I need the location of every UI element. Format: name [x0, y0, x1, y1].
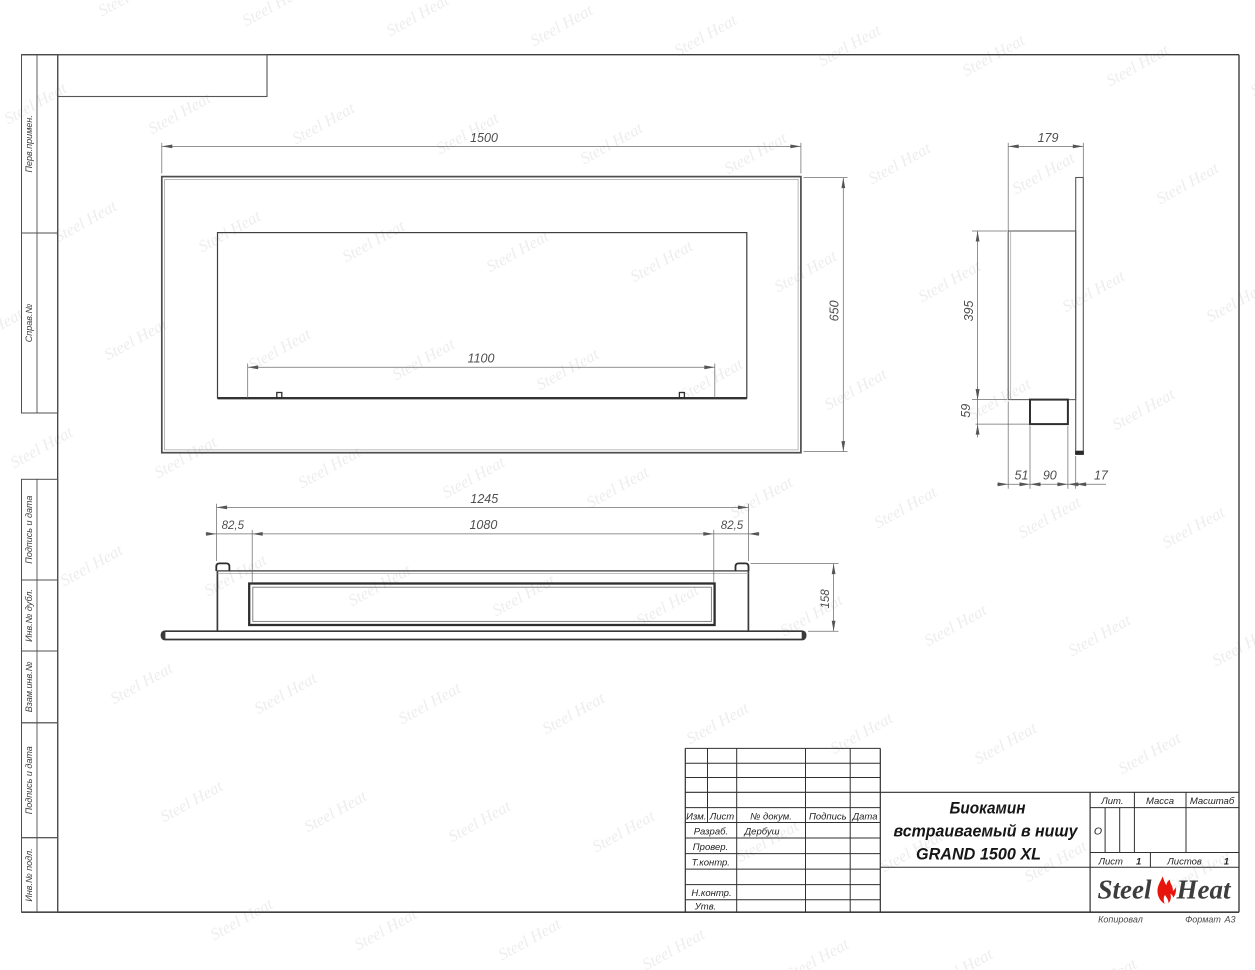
svg-text:Steel Heat: Steel Heat [677, 354, 746, 404]
svg-text:А3: А3 [1223, 915, 1235, 925]
svg-text:Steel Heat: Steel Heat [157, 776, 226, 826]
svg-text:Steel Heat: Steel Heat [1153, 158, 1222, 208]
svg-text:Steel Heat: Steel Heat [57, 540, 126, 590]
svg-text:Steel Heat: Steel Heat [683, 698, 752, 748]
svg-text:Steel Heat: Steel Heat [0, 304, 26, 354]
svg-text:Steel Heat: Steel Heat [627, 236, 696, 286]
svg-text:Steel Heat: Steel Heat [195, 206, 264, 256]
svg-text:1080: 1080 [469, 518, 497, 532]
svg-text:Steel Heat: Steel Heat [583, 462, 652, 512]
svg-text:Steel Heat: Steel Heat [345, 560, 414, 610]
svg-text:Масса: Масса [1146, 796, 1174, 807]
svg-text:17: 17 [1094, 469, 1109, 483]
svg-text:Steel Heat: Steel Heat [539, 688, 608, 738]
svg-text:Steel Heat: Steel Heat [589, 806, 658, 856]
svg-text:1100: 1100 [468, 352, 495, 366]
svg-text:Дербуш: Дербуш [743, 827, 779, 838]
svg-text:59: 59 [959, 404, 973, 418]
svg-text:Steel Heat: Steel Heat [927, 944, 996, 970]
svg-text:Steel Heat: Steel Heat [395, 678, 464, 728]
svg-text:Steel Heat: Steel Heat [1103, 40, 1172, 90]
svg-text:Steel Heat: Steel Heat [815, 20, 884, 70]
svg-text:Steel Heat: Steel Heat [783, 934, 852, 970]
svg-text:GRAND 1500 XL: GRAND 1500 XL [916, 845, 1041, 864]
svg-text:Дата: Дата [851, 812, 877, 823]
svg-text:Перв.примен.: Перв.примен. [24, 115, 34, 172]
svg-text:Steel Heat: Steel Heat [733, 816, 802, 866]
svg-text:Steel Heat: Steel Heat [871, 482, 940, 532]
svg-text:Steel Heat: Steel Heat [971, 718, 1040, 768]
svg-text:Изм.: Изм. [686, 812, 706, 823]
svg-text:Подпись и дата: Подпись и дата [24, 496, 34, 564]
svg-text:Steel Heat: Steel Heat [1159, 502, 1228, 552]
svg-text:Steel Heat: Steel Heat [777, 590, 846, 640]
svg-text:Листов: Листов [1166, 856, 1202, 867]
svg-text:Инв.№ дубл.: Инв.№ дубл. [24, 589, 34, 642]
svg-text:встраиваемый в нишу: встраиваемый в нишу [894, 822, 1079, 841]
svg-text:Лист: Лист [1097, 856, 1123, 867]
svg-text:Steel Heat: Steel Heat [1203, 276, 1255, 326]
svg-text:Взам.инв.№: Взам.инв.№ [24, 661, 34, 712]
svg-text:Утв.: Утв. [694, 902, 717, 913]
svg-text:Копировал: Копировал [1098, 915, 1143, 925]
svg-text:Steel Heat: Steel Heat [1215, 964, 1255, 970]
svg-text:82,5: 82,5 [222, 520, 245, 532]
svg-text:650: 650 [828, 300, 842, 321]
svg-text:Steel Heat: Steel Heat [483, 226, 552, 276]
svg-text:Steel Heat: Steel Heat [201, 550, 270, 600]
svg-text:Т.контр.: Т.контр. [692, 858, 730, 869]
svg-text:Steel Heat: Steel Heat [383, 0, 452, 40]
svg-text:Steel Heat: Steel Heat [51, 196, 120, 246]
svg-text:Steel Heat: Steel Heat [915, 256, 984, 306]
svg-text:90: 90 [1043, 469, 1057, 483]
svg-text:Steel Heat: Steel Heat [495, 914, 564, 964]
svg-text:Steel Heat: Steel Heat [301, 786, 370, 836]
svg-text:179: 179 [1038, 131, 1059, 145]
svg-text:Steel Heat: Steel Heat [1109, 384, 1178, 434]
svg-text:Steel Heat: Steel Heat [95, 0, 164, 20]
svg-text:Steel Heat: Steel Heat [721, 128, 790, 178]
svg-text:1500: 1500 [470, 131, 498, 145]
svg-text:Steel Heat: Steel Heat [1015, 492, 1084, 542]
svg-text:Провер.: Провер. [693, 842, 728, 853]
svg-text:Steel Heat: Steel Heat [1247, 50, 1255, 100]
svg-text:Steel Heat: Steel Heat [445, 796, 514, 846]
svg-text:Steel Heat: Steel Heat [0, 0, 20, 10]
svg-text:Steel Heat: Steel Heat [527, 0, 596, 50]
svg-text:Лист: Лист [709, 812, 735, 823]
svg-text:Steel Heat: Steel Heat [1009, 148, 1078, 198]
svg-text:Steel Heat: Steel Heat [639, 924, 708, 970]
svg-text:Н.контр.: Н.контр. [691, 888, 731, 899]
svg-text:Steel Heat: Steel Heat [827, 708, 896, 758]
svg-text:Steel Heat: Steel Heat [1065, 610, 1134, 660]
svg-text:1: 1 [1136, 856, 1141, 867]
svg-text:Steel Heat: Steel Heat [1059, 266, 1128, 316]
svg-text:Steel Heat: Steel Heat [207, 894, 276, 944]
svg-text:Steel Heat: Steel Heat [1071, 954, 1140, 970]
svg-text:Steel Heat: Steel Heat [101, 314, 170, 364]
svg-text:Steel Heat: Steel Heat [251, 668, 320, 718]
svg-text:Steel Heat: Steel Heat [577, 118, 646, 168]
svg-text:Steel Heat: Steel Heat [389, 334, 458, 384]
svg-text:Steel Heat: Steel Heat [107, 658, 176, 708]
svg-text:Steel Heat: Steel Heat [865, 138, 934, 188]
svg-text:Steel Heat: Steel Heat [1, 78, 70, 128]
svg-text:Steel: Steel [1098, 875, 1152, 905]
svg-text:Steel Heat: Steel Heat [921, 600, 990, 650]
svg-text:Steel Heat: Steel Heat [533, 344, 602, 394]
svg-text:Steel Heat: Steel Heat [7, 422, 76, 472]
svg-text:1245: 1245 [470, 492, 498, 506]
svg-text:Steel Heat: Steel Heat [239, 0, 308, 30]
svg-text:№ докум.: № докум. [750, 812, 792, 823]
svg-text:Подпись: Подпись [809, 812, 847, 823]
svg-text:Steel Heat: Steel Heat [489, 570, 558, 620]
svg-text:Формат: Формат [1185, 915, 1221, 925]
svg-text:Steel Heat: Steel Heat [145, 88, 214, 138]
svg-text:Steel Heat: Steel Heat [1209, 620, 1255, 670]
svg-text:51: 51 [1015, 469, 1029, 483]
svg-text:Биокамин: Биокамин [950, 799, 1026, 818]
svg-text:Steel Heat: Steel Heat [1115, 728, 1184, 778]
svg-text:Steel Heat: Steel Heat [727, 472, 796, 522]
svg-text:Лит.: Лит. [1100, 796, 1123, 807]
svg-text:Steel Heat: Steel Heat [671, 10, 740, 60]
svg-text:О: О [1094, 826, 1102, 838]
svg-text:Heat: Heat [1176, 875, 1232, 905]
svg-text:Steel Heat: Steel Heat [289, 98, 358, 148]
svg-text:Steel Heat: Steel Heat [821, 364, 890, 414]
svg-text:82,5: 82,5 [721, 520, 744, 532]
svg-text:Steel Heat: Steel Heat [771, 246, 840, 296]
svg-text:Справ.№: Справ.№ [24, 304, 34, 343]
svg-text:Разраб.: Разраб. [694, 827, 728, 838]
svg-text:Подпись и дата: Подпись и дата [24, 746, 34, 814]
svg-text:1: 1 [1224, 856, 1229, 867]
svg-text:158: 158 [820, 589, 832, 609]
svg-text:Инв.№ подл.: Инв.№ подл. [24, 848, 34, 901]
svg-text:Steel Heat: Steel Heat [339, 216, 408, 266]
svg-text:395: 395 [962, 301, 976, 322]
svg-text:Масштаб: Масштаб [1190, 796, 1235, 807]
